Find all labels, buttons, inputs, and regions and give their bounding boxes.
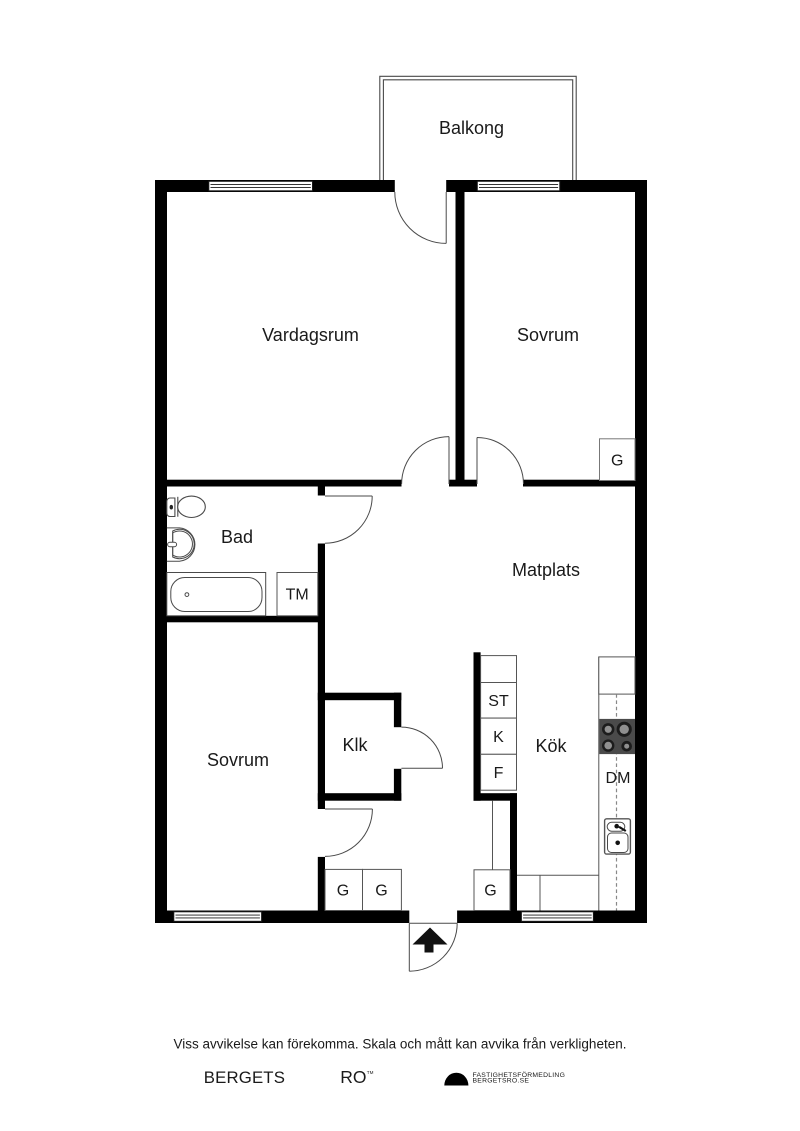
svg-text:DM: DM	[606, 770, 631, 787]
svg-text:F: F	[494, 765, 504, 782]
svg-text:Bad: Bad	[221, 527, 253, 547]
svg-text:Sovrum: Sovrum	[517, 325, 579, 345]
svg-text:Kök: Kök	[535, 736, 567, 756]
svg-text:TM: TM	[286, 587, 309, 604]
svg-text:RO: RO	[340, 1067, 366, 1087]
svg-text:K: K	[493, 729, 504, 746]
svg-text:G: G	[484, 883, 496, 900]
svg-text:BERGETS: BERGETS	[204, 1068, 285, 1087]
svg-text:G: G	[337, 883, 349, 900]
svg-text:Sovrum: Sovrum	[207, 750, 269, 770]
svg-text:Balkong: Balkong	[439, 118, 504, 138]
svg-text:TM: TM	[367, 1070, 374, 1075]
svg-text:G: G	[375, 883, 387, 900]
svg-text:ST: ST	[488, 693, 509, 710]
svg-text:G: G	[611, 453, 623, 470]
svg-text:Klk: Klk	[342, 735, 368, 755]
svg-text:Vardagsrum: Vardagsrum	[262, 325, 359, 345]
svg-text:Matplats: Matplats	[512, 560, 580, 580]
svg-text:BERGETSRO.SE: BERGETSRO.SE	[473, 1077, 530, 1084]
svg-text:Viss avvikelse kan förekomma.: Viss avvikelse kan förekomma. Skala och …	[174, 1037, 627, 1052]
